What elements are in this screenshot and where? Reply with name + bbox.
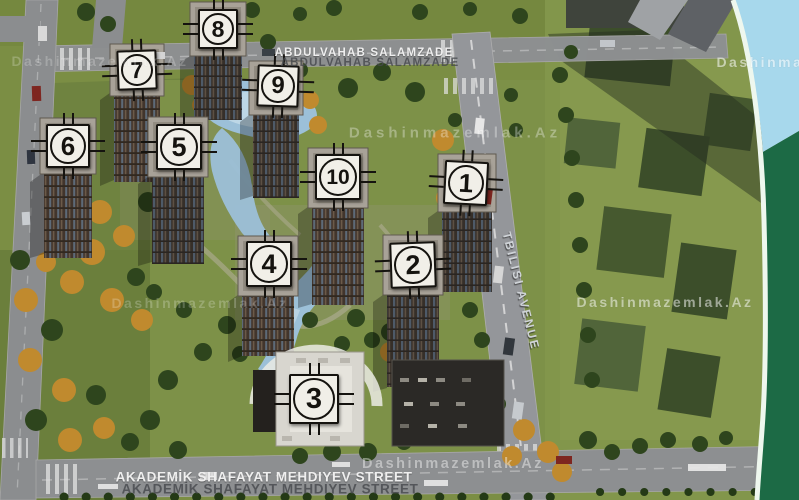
tower-6 [30,118,96,258]
tower-9 [240,61,303,200]
tower-10 [298,148,368,308]
tower-8 [180,2,246,124]
site-plan-render: ABDULVAHAB SALAMZADE ABDULVAHAB SALAMZAD… [0,0,799,500]
tower-5 [138,117,208,266]
parking-lot [392,360,504,446]
aerial-render [0,0,799,500]
tower-4 [228,236,298,362]
building-3-block [253,350,377,446]
